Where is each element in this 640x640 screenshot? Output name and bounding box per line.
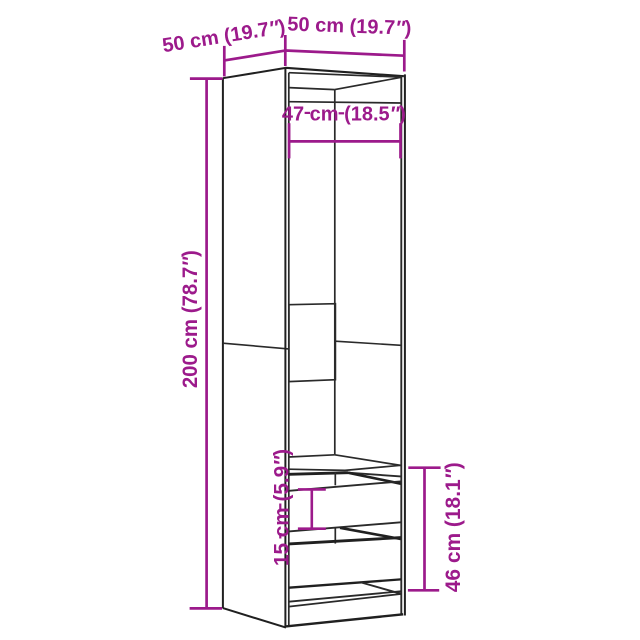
svg-text:200 cm (78.7″): 200 cm (78.7″) bbox=[179, 250, 202, 388]
svg-text:46 cm (18.1″): 46 cm (18.1″) bbox=[442, 462, 465, 592]
svg-text:47 cm (18.5″): 47 cm (18.5″) bbox=[282, 103, 406, 125]
svg-text:15 cm (5.9″): 15 cm (5.9″) bbox=[270, 449, 293, 566]
svg-text:50 cm (19.7″): 50 cm (19.7″) bbox=[287, 13, 412, 39]
